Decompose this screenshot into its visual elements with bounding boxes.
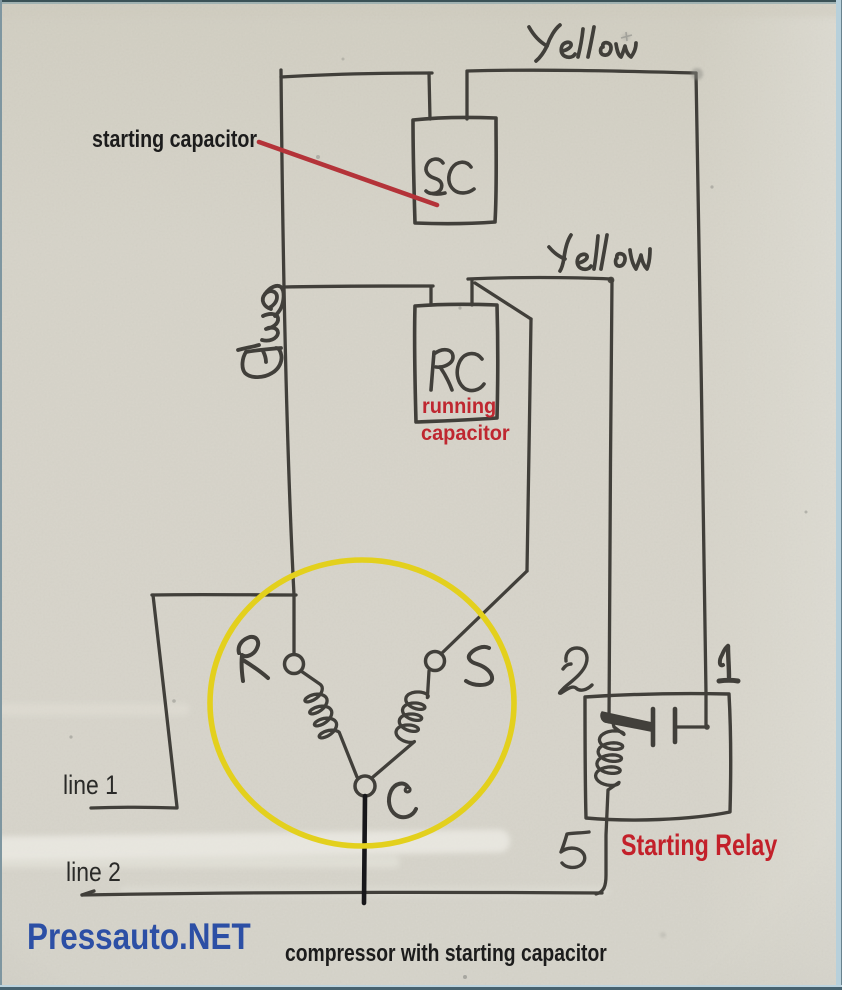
svg-text:capacitor: capacitor (421, 422, 510, 446)
svg-text:starting capacitor: starting capacitor (92, 125, 257, 152)
svg-text:compressor with starting capac: compressor with starting capacitor (285, 939, 607, 967)
svg-text:line 2: line 2 (66, 857, 121, 887)
svg-text:Starting Relay: Starting Relay (621, 828, 777, 862)
svg-text:line 1: line 1 (63, 770, 118, 800)
svg-text:Pressauto.NET: Pressauto.NET (27, 917, 251, 958)
svg-text:running: running (422, 395, 496, 419)
